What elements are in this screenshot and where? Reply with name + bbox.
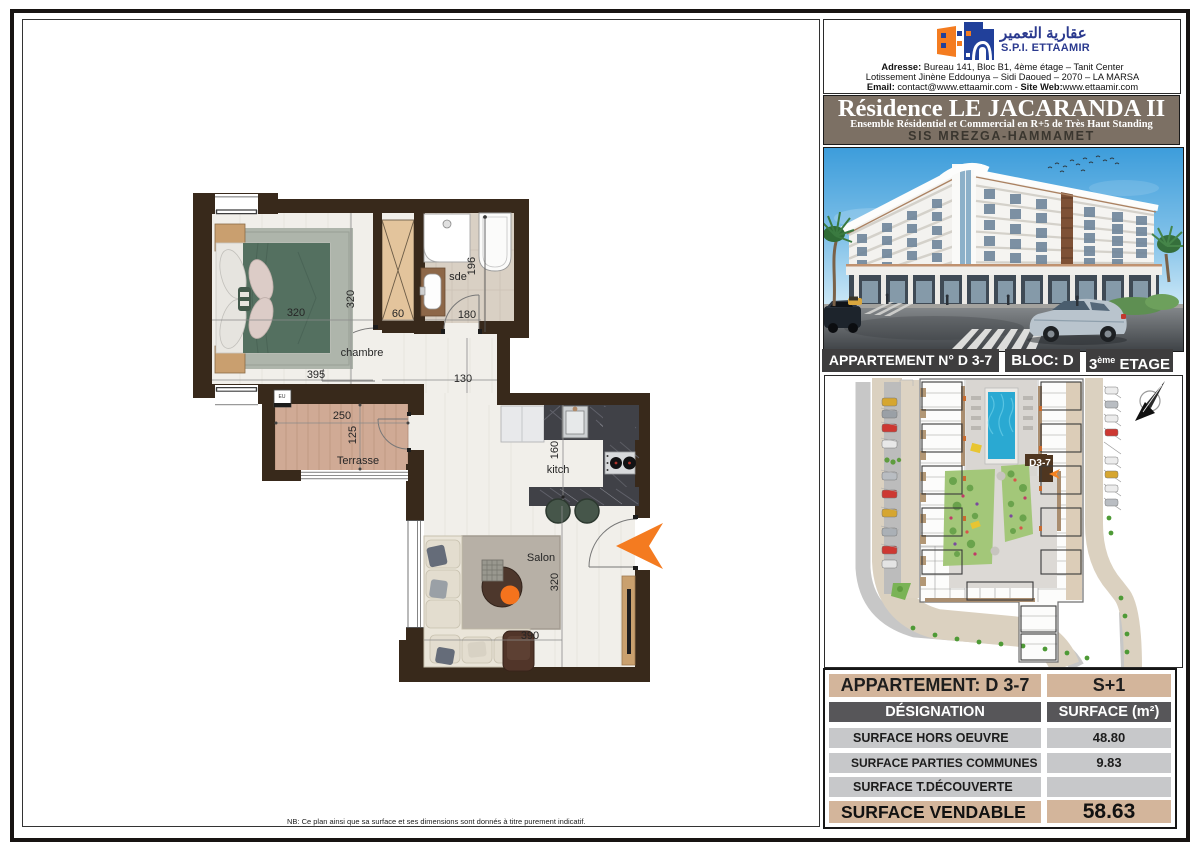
svg-text:60: 60 [392, 308, 404, 320]
svg-text:kitch: kitch [547, 464, 570, 476]
svg-text:Terrasse: Terrasse [337, 455, 379, 467]
svg-text:EU: EU [279, 394, 286, 400]
svg-text:196: 196 [466, 257, 478, 275]
svg-text:Salon: Salon [527, 552, 555, 564]
svg-text:395: 395 [307, 369, 325, 381]
svg-text:sde: sde [449, 271, 467, 283]
svg-text:320: 320 [287, 307, 305, 319]
svg-text:390: 390 [521, 630, 539, 642]
svg-text:320: 320 [345, 290, 357, 308]
svg-text:chambre: chambre [341, 347, 384, 359]
svg-text:130: 130 [454, 373, 472, 385]
svg-text:160: 160 [549, 441, 561, 459]
svg-text:320: 320 [549, 573, 561, 591]
svg-text:D3-7: D3-7 [1029, 458, 1051, 469]
svg-text:180: 180 [458, 309, 476, 321]
svg-text:250: 250 [333, 410, 351, 422]
svg-text:125: 125 [347, 426, 359, 444]
